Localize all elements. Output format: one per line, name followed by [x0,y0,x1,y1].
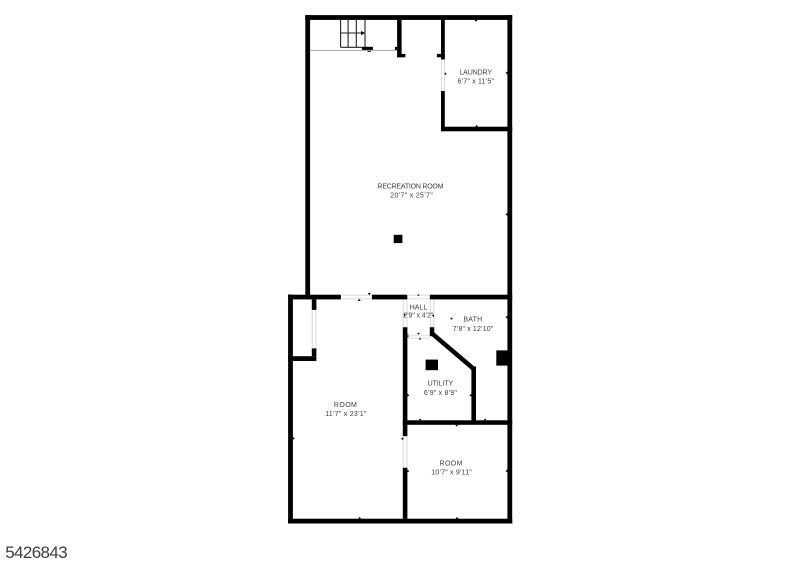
svg-text:RECREATION ROOM: RECREATION ROOM [378,184,444,191]
svg-text:10’7" x 9’11": 10’7" x 9’11" [431,469,472,476]
svg-text:LAUNDRY: LAUNDRY [459,69,492,76]
svg-text:BATH: BATH [463,316,482,323]
svg-text:5426843: 5426843 [5,543,67,562]
svg-text:ROOM: ROOM [334,402,357,409]
svg-text:6’9" x 8’9": 6’9" x 8’9" [424,390,458,397]
svg-text:ROOM: ROOM [440,461,463,468]
svg-text:6’7" x 11’5": 6’7" x 11’5" [457,79,494,86]
svg-text:UTILITY: UTILITY [428,381,454,388]
svg-text:2’9" x 4’2": 2’9" x 4’2" [403,313,434,320]
svg-text:11’7" x 23’1": 11’7" x 23’1" [325,411,367,418]
svg-text:7’8" x 12’10": 7’8" x 12’10" [453,326,494,333]
svg-text:HALL: HALL [410,304,428,311]
svg-text:20’7" x 25’7": 20’7" x 25’7" [390,192,433,199]
